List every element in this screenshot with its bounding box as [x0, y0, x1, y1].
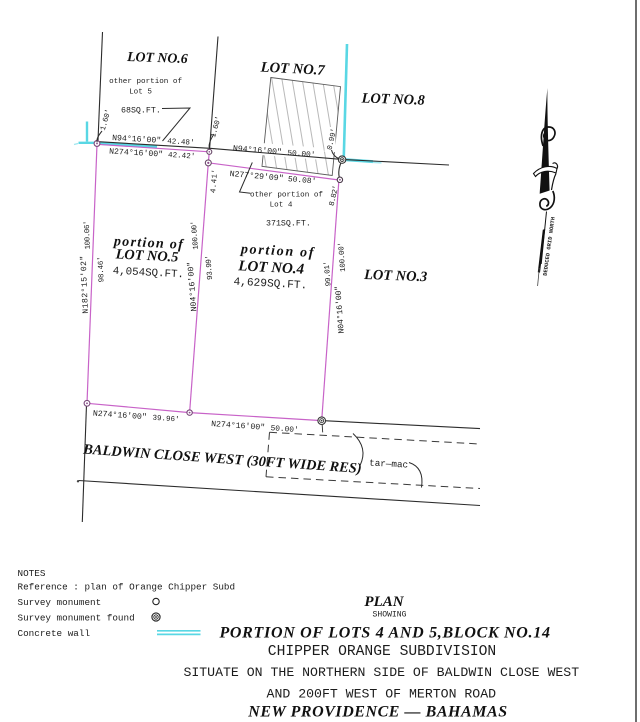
svg-text:42.48': 42.48' — [167, 138, 195, 148]
svg-text:42.42': 42.42' — [168, 152, 196, 162]
svg-text:Concrete wall: Concrete wall — [18, 628, 91, 639]
svg-text:98.46': 98.46' — [98, 256, 107, 282]
svg-text:NOTES: NOTES — [18, 568, 46, 579]
svg-text:LOT NO.3: LOT NO.3 — [363, 267, 428, 285]
svg-text:tar—mac: tar—mac — [369, 458, 409, 471]
svg-text:PORTION OF LOTS 4 AND 5,BLOCK: PORTION OF LOTS 4 AND 5,BLOCK NO.14 — [218, 625, 550, 642]
svg-text:Reference : plan of Orange Chi: Reference : plan of Orange Chipper Subd — [18, 582, 236, 593]
svg-text:NEW PROVIDENCE — BAHAMAS: NEW PROVIDENCE — BAHAMAS — [247, 704, 507, 721]
svg-text:Lot 4: Lot 4 — [270, 201, 293, 209]
svg-text:LOT NO.5: LOT NO.5 — [114, 246, 179, 265]
svg-text:CHIPPER ORANGE SUBDIVISION: CHIPPER ORANGE SUBDIVISION — [268, 644, 496, 660]
svg-text:PLAN: PLAN — [364, 594, 404, 610]
svg-text:Lot 5: Lot 5 — [129, 89, 152, 97]
svg-text:AND 200FT WEST OF MERTON ROAD: AND 200FT WEST OF MERTON ROAD — [267, 687, 497, 702]
svg-text:other portion of: other portion of — [250, 192, 323, 200]
svg-text:other portion of: other portion of — [109, 78, 182, 86]
svg-text:Survey monument found: Survey monument found — [18, 613, 135, 624]
svg-text:68SQ.FT.: 68SQ.FT. — [121, 107, 161, 116]
svg-text:Survey monument: Survey monument — [18, 597, 102, 608]
svg-text:LOT NO.6: LOT NO.6 — [126, 49, 188, 66]
svg-text:SITUATE ON THE NORTHERN SIDE O: SITUATE ON THE NORTHERN SIDE OF BALDWIN … — [183, 665, 579, 680]
svg-text:LOT NO.8: LOT NO.8 — [360, 90, 425, 108]
svg-text:100.06': 100.06' — [84, 220, 93, 249]
svg-text:371SQ.FT.: 371SQ.FT. — [266, 219, 311, 228]
svg-text:SHOWING: SHOWING — [373, 611, 407, 620]
